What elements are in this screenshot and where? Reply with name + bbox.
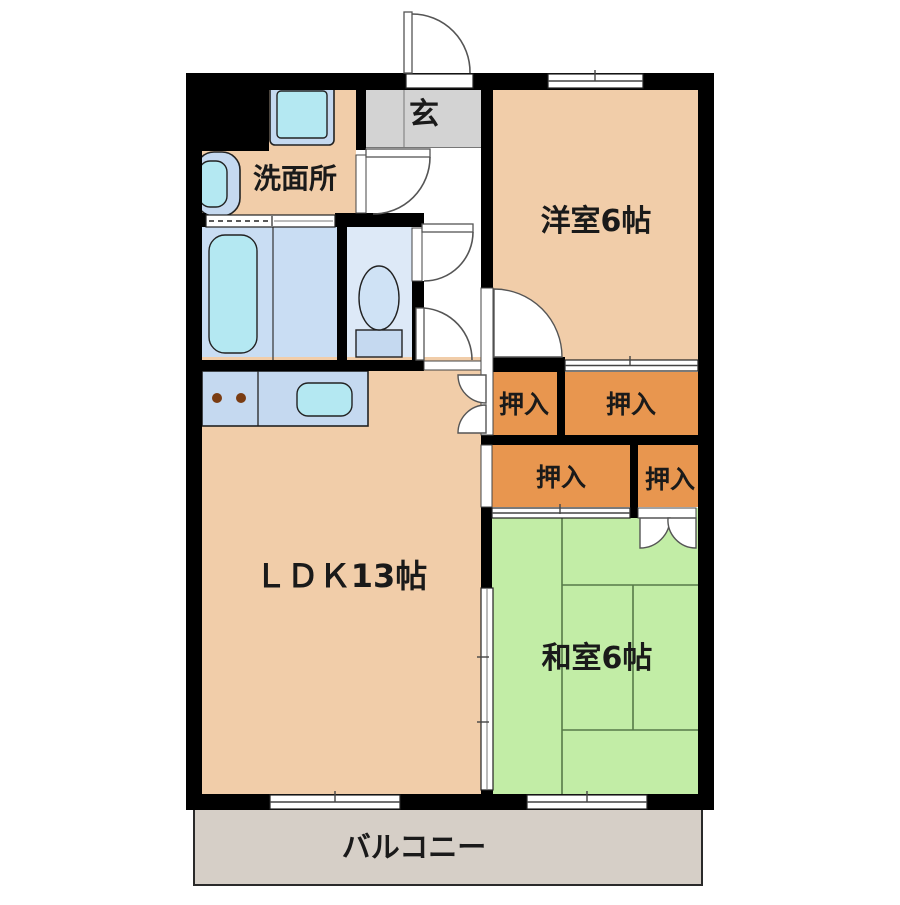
bathtub bbox=[209, 235, 257, 353]
label-closet-bottom-left: 押入 bbox=[536, 463, 586, 492]
wall-closet-mid bbox=[481, 435, 698, 445]
wall-ldk-washitsu-lower bbox=[481, 790, 493, 797]
label-closet-top-left: 押入 bbox=[499, 390, 549, 419]
wall-genkan-washroom bbox=[356, 73, 366, 150]
label-closet-top-right: 押入 bbox=[606, 390, 656, 419]
wall-left bbox=[186, 73, 202, 810]
stove-burner bbox=[212, 393, 222, 403]
kitchen-sink bbox=[297, 383, 352, 416]
floor-plan: 玄 洗面所 洋室6帖 押入 押入 押入 押入 ＬＤＫ13帖 和室6帖 バルコニー bbox=[0, 0, 900, 900]
toilet-doorway bbox=[412, 228, 422, 281]
vanity-basin bbox=[199, 161, 227, 207]
washroom-doorway bbox=[356, 155, 366, 213]
washing-machine-tub bbox=[277, 91, 327, 138]
floor-plan-page: 玄 洗面所 洋室6帖 押入 押入 押入 押入 ＬＤＫ13帖 和室6帖 バルコニー bbox=[0, 0, 900, 900]
entrance-threshold bbox=[406, 74, 473, 88]
label-closet-bottom-right: 押入 bbox=[645, 465, 695, 494]
wall-hall-western bbox=[481, 73, 493, 288]
label-japanese-room: 和室6帖 bbox=[542, 641, 653, 676]
wall-western-closet bbox=[492, 357, 565, 372]
label-western-room: 洋室6帖 bbox=[541, 204, 652, 239]
wall-bath-ldk bbox=[194, 360, 424, 371]
wall-closet-divider-top bbox=[557, 372, 565, 435]
stove-burner bbox=[236, 393, 246, 403]
window-western-top bbox=[548, 70, 643, 88]
label-balcony: バルコニー bbox=[342, 830, 486, 864]
wall-closet-divider-bottom bbox=[630, 445, 638, 507]
toilet-tank bbox=[356, 330, 402, 357]
toilet-bowl bbox=[359, 266, 399, 330]
entrance-door bbox=[404, 12, 470, 73]
wall-ldk-washitsu-upper bbox=[481, 507, 492, 588]
wall-bath-toilet bbox=[337, 217, 347, 360]
wall-right bbox=[698, 73, 714, 810]
label-ldk: ＬＤＫ13帖 bbox=[255, 557, 428, 595]
ldk-hall-threshold bbox=[424, 361, 481, 370]
bathroom-folding-door bbox=[206, 215, 335, 227]
label-genkan: 玄 bbox=[409, 97, 439, 132]
room-floors bbox=[194, 78, 702, 885]
wall-bath-stub-left bbox=[194, 213, 206, 227]
wall-closet-post bbox=[630, 507, 638, 518]
wall-under-washroom bbox=[335, 213, 424, 227]
label-washroom: 洗面所 bbox=[253, 162, 337, 195]
closet-front-strip bbox=[481, 445, 492, 507]
